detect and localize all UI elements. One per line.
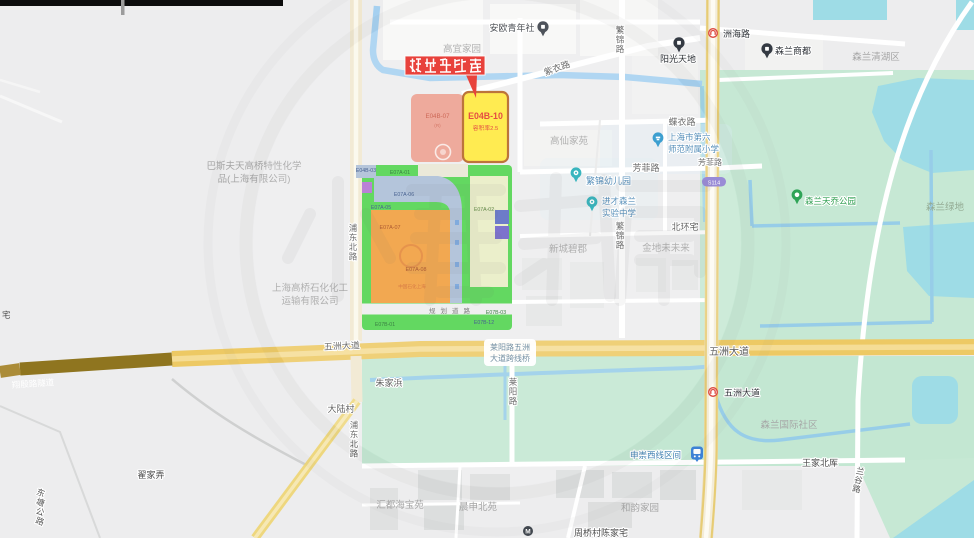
svg-text:翟家弄: 翟家弄 [137,469,164,480]
svg-text:晨申北苑: 晨申北苑 [459,501,498,513]
svg-text:森兰天乔公园: 森兰天乔公园 [805,196,856,206]
svg-text:森兰清湖区: 森兰清湖区 [852,51,900,63]
svg-text:森兰国际社区: 森兰国际社区 [760,419,818,431]
svg-text:森兰绿地: 森兰绿地 [926,201,965,213]
svg-text:洲海路: 洲海路 [723,28,750,39]
svg-text:宅: 宅 [2,310,11,320]
svg-text:王家北厍: 王家北厍 [802,457,838,468]
svg-text:森兰商都: 森兰商都 [775,45,811,56]
svg-text:周桥村陈家宅: 周桥村陈家宅 [574,527,628,538]
